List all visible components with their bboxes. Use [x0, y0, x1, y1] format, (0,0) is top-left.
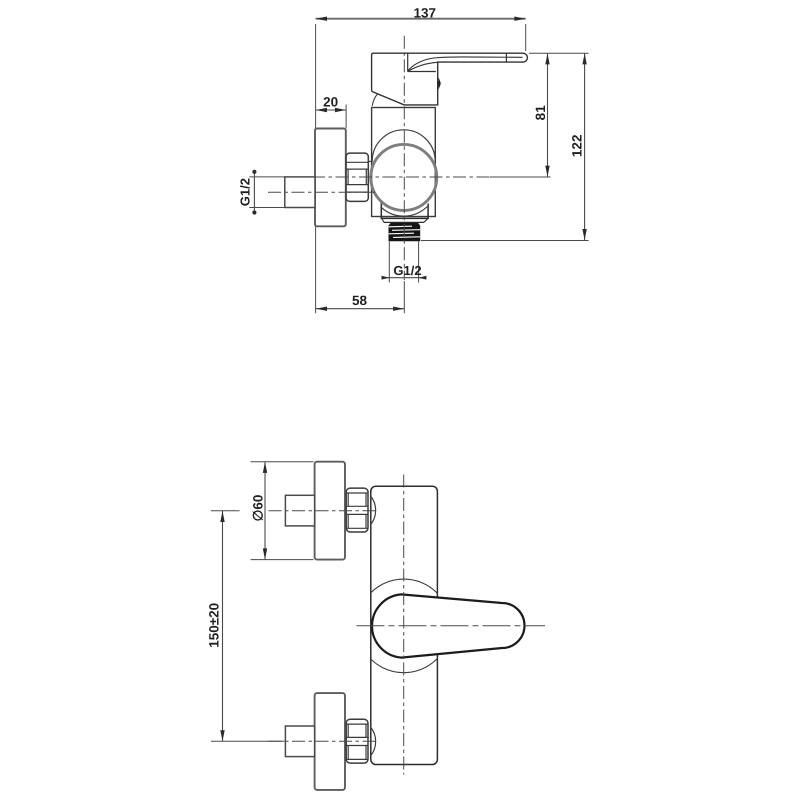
svg-text:137: 137 — [414, 5, 437, 20]
svg-text:150±20: 150±20 — [206, 603, 221, 648]
svg-text:58: 58 — [352, 293, 368, 308]
svg-text:∅60: ∅60 — [251, 495, 266, 522]
svg-text:20: 20 — [323, 95, 338, 110]
svg-text:122: 122 — [570, 135, 585, 158]
svg-text:G1/2: G1/2 — [393, 263, 421, 278]
svg-text:81: 81 — [533, 105, 548, 121]
svg-text:G1/2: G1/2 — [238, 178, 253, 206]
